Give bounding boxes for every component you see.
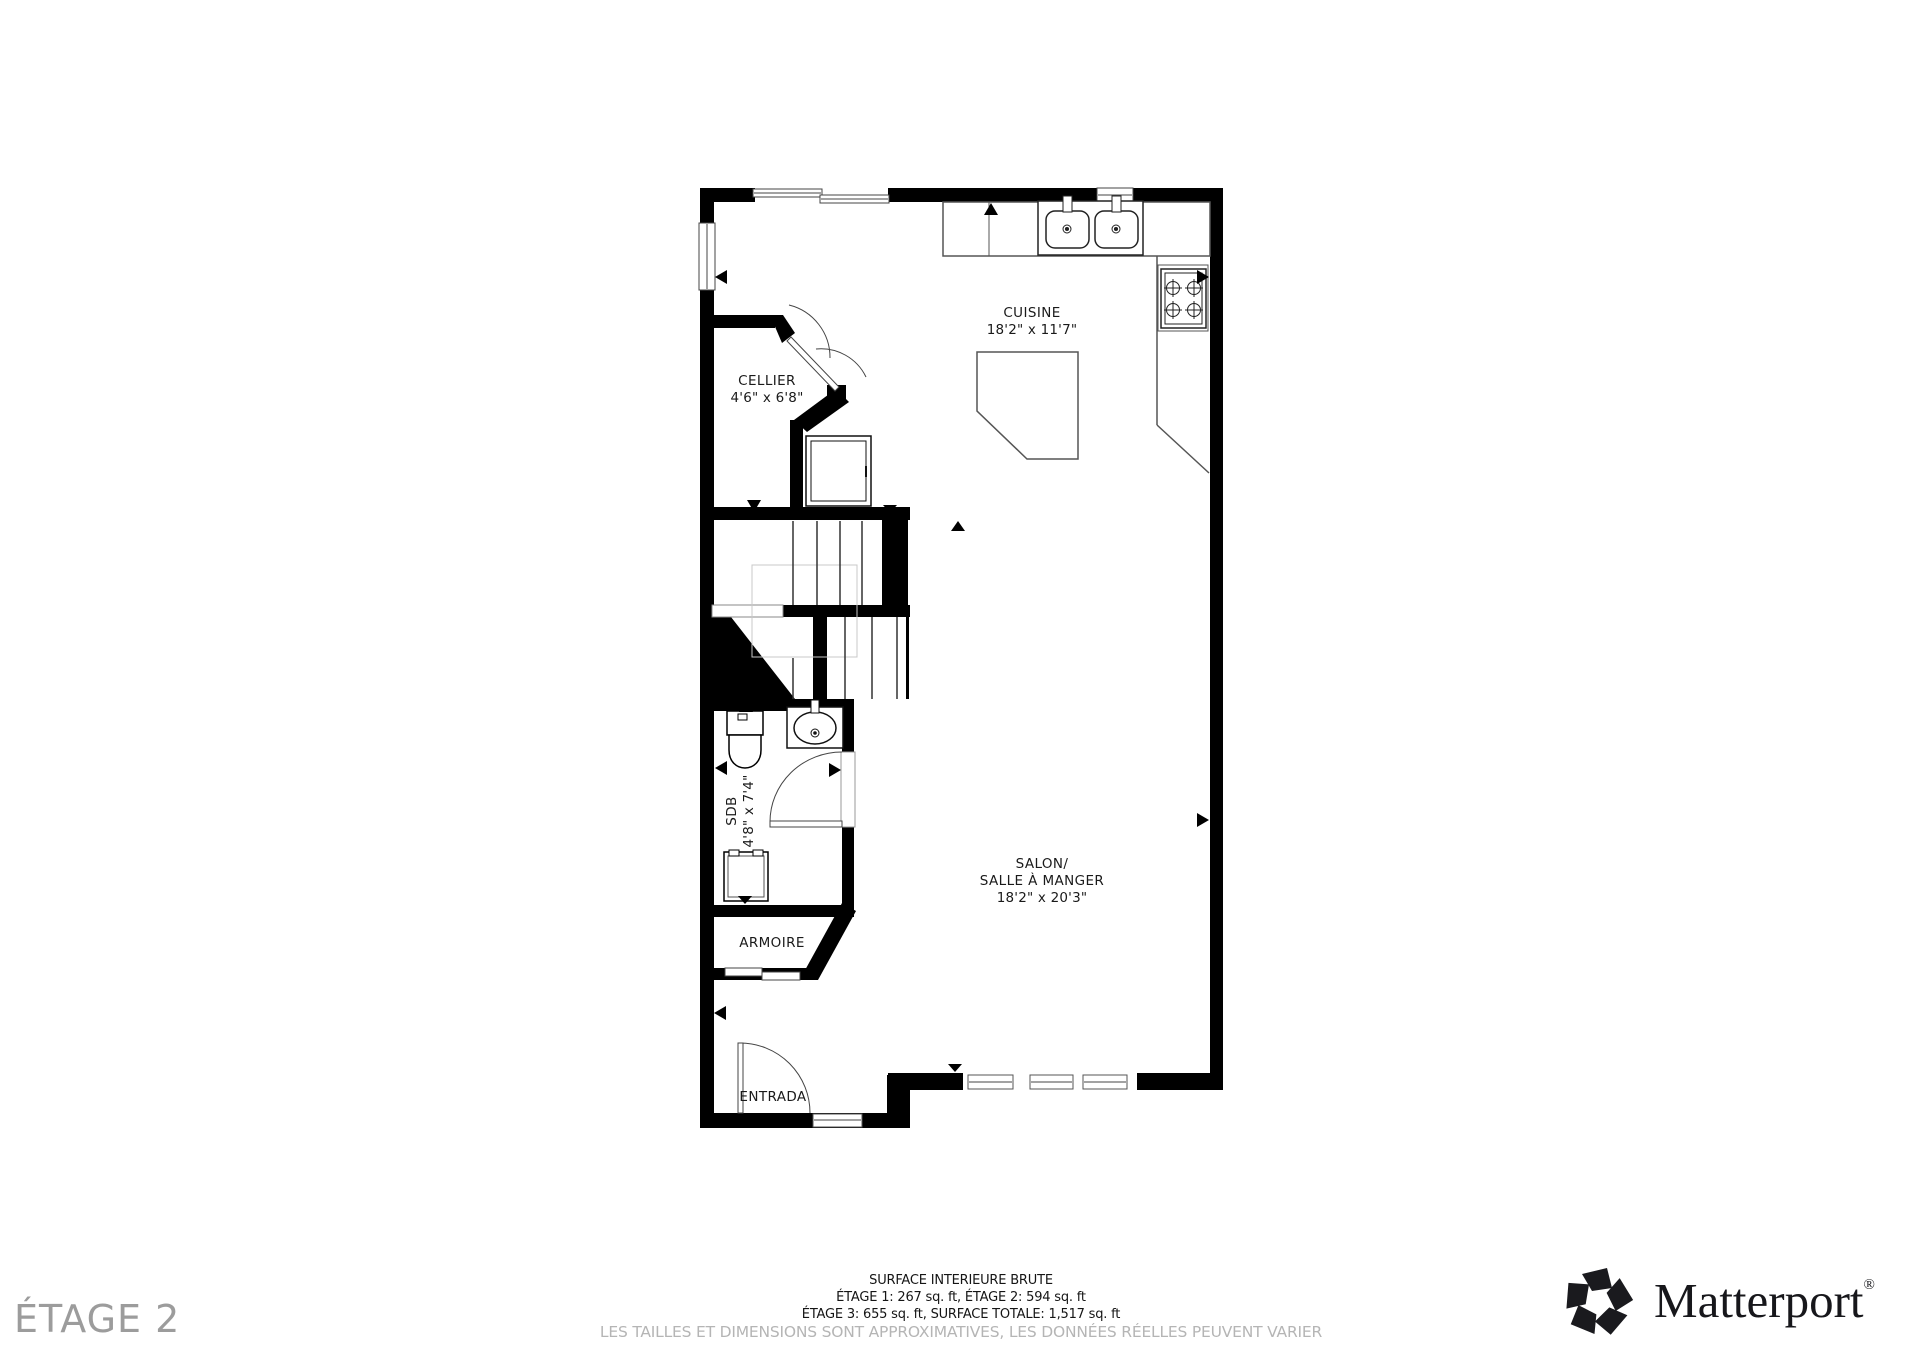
floor-label: ÉTAGE 2 [14, 1297, 180, 1341]
floor-plan-page: CUISINE 18'2" x 11'7" CELLIER 4'6" x 6'8… [0, 0, 1920, 1357]
floor-plan-drawing [0, 0, 1920, 1357]
kitchen-island [977, 352, 1078, 459]
room-name: SDB [724, 775, 741, 848]
disclaimer-text: LES TAILLES ET DIMENSIONS SONT APPROXIMA… [600, 1324, 1322, 1341]
marker-sdb-right [829, 763, 841, 777]
bathroom-door-arc [770, 752, 842, 822]
bathroom-door-leaf [770, 821, 842, 827]
matterport-wordmark: Matterport® [1654, 1272, 1875, 1329]
bathroom-door-opening [841, 752, 855, 827]
marker-salon-right [1197, 813, 1209, 827]
room-name: ARMOIRE [739, 935, 805, 952]
room-dims: 18'2" x 20'3" [980, 890, 1104, 907]
surface-line-2: ÉTAGE 3: 655 sq. ft, SURFACE TOTALE: 1,5… [600, 1306, 1322, 1323]
kitchen-sink-icon [1038, 196, 1143, 255]
room-dims: 18'2" x 11'7" [987, 322, 1078, 339]
surface-summary: SURFACE INTERIEURE BRUTE ÉTAGE 1: 267 sq… [600, 1272, 1322, 1341]
wall-layer [700, 188, 1223, 1128]
room-label-entrada: ENTRADA [739, 1089, 806, 1106]
closet-door-panel-1 [725, 968, 762, 976]
closet-door-panel-2 [762, 972, 800, 980]
shower-icon [724, 850, 768, 901]
surface-line-1: ÉTAGE 1: 267 sq. ft, ÉTAGE 2: 594 sq. ft [600, 1289, 1322, 1306]
toilet-icon [727, 711, 763, 768]
room-label-sdb: SDB 4'8" x 7'4" [724, 775, 758, 848]
room-dims: 4'8" x 7'4" [741, 775, 758, 848]
marker-salon-bottom [948, 1064, 962, 1072]
room-label-cellier: CELLIER 4'6" x 6'8" [731, 373, 804, 407]
marker-left-kitchen [715, 270, 727, 284]
matterport-logo: Matterport® [1560, 1262, 1875, 1338]
room-name: ENTRADA [739, 1089, 806, 1106]
room-label-salon: SALON/ SALLE À MANGER 18'2" x 20'3" [980, 856, 1104, 907]
marker-sdb-left [715, 761, 727, 775]
room-name: CUISINE [987, 305, 1078, 322]
room-label-armoire: ARMOIRE [739, 935, 805, 952]
marker-stairs-up [951, 521, 965, 531]
room-name: CELLIER [731, 373, 804, 390]
fridge-icon [806, 436, 871, 506]
surface-title: SURFACE INTERIEURE BRUTE [600, 1272, 1322, 1289]
registered-mark: ® [1864, 1277, 1875, 1293]
stair-void-triangle [713, 617, 795, 699]
stair-landing-opening [712, 605, 783, 617]
bathroom-sink-icon [787, 700, 843, 748]
room-label-cuisine: CUISINE 18'2" x 11'7" [987, 305, 1078, 339]
room-name-2: SALLE À MANGER [980, 873, 1104, 890]
marker-entrada-left [714, 1006, 726, 1020]
matterport-pinwheel-icon [1560, 1262, 1636, 1338]
room-dims: 4'6" x 6'8" [731, 390, 804, 407]
room-name: SALON/ [980, 856, 1104, 873]
